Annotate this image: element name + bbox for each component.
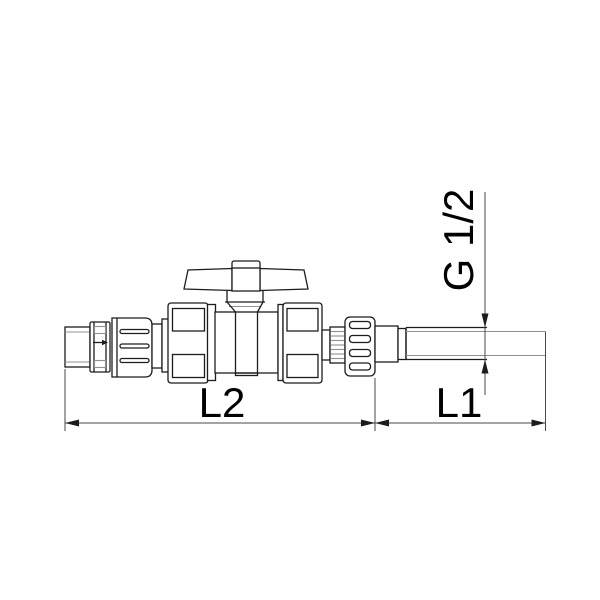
dim-arrow-right-icon <box>532 420 546 427</box>
technical-drawing-canvas: G 1/2 L2 L1 <box>0 0 600 600</box>
dim-arrow-left-icon <box>375 420 389 427</box>
step-adapter-left-icon <box>152 319 169 372</box>
union-nut-left-icon <box>168 303 208 383</box>
dim-arrow-down-icon <box>482 314 489 328</box>
compression-nut-left-icon <box>112 318 152 377</box>
l1-dimension-label: L1 <box>436 379 483 426</box>
male-thread-fitting-icon <box>65 327 90 367</box>
union-nut-right-icon <box>283 303 322 383</box>
dim-arrow-up-icon <box>482 360 489 374</box>
spline-insert-icon <box>322 327 345 363</box>
valve-body-icon <box>215 290 278 376</box>
pipe-spigot-icon <box>406 328 546 360</box>
dim-arrow-right-icon <box>361 420 375 427</box>
union-stub-right <box>278 305 283 381</box>
barb-cylinder-icon <box>375 326 406 362</box>
valve-drawing-svg: G 1/2 L2 L1 <box>0 0 600 600</box>
dim-arrow-left-icon <box>65 420 79 427</box>
dimension-g12: G 1/2 <box>435 189 489 395</box>
l2-dimension-label: L2 <box>199 379 246 426</box>
knurled-nut-right-icon <box>345 317 375 376</box>
union-stub-left <box>208 305 216 381</box>
ribbed-collar-icon <box>90 322 110 372</box>
thread-size-label: G 1/2 <box>435 189 482 292</box>
butterfly-handle-icon <box>184 261 308 291</box>
